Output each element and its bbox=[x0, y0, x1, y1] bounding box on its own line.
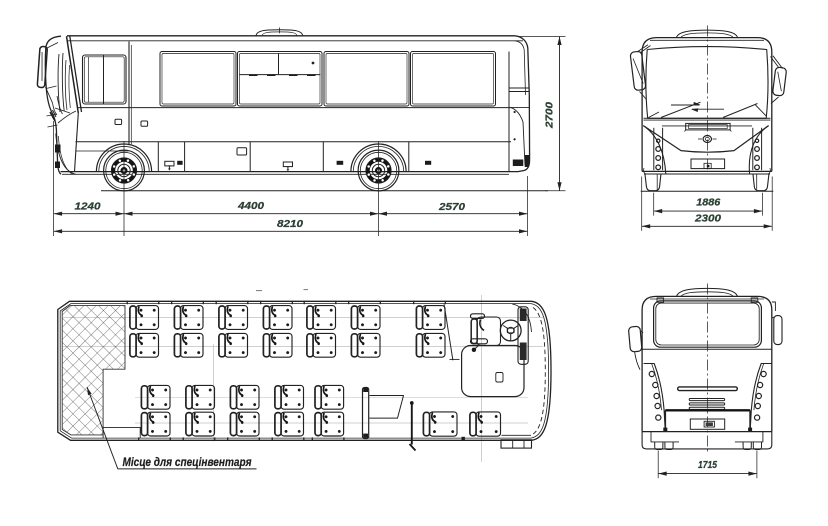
svg-text:1886: 1886 bbox=[696, 197, 720, 208]
svg-text:2700: 2700 bbox=[545, 101, 556, 129]
svg-text:2570: 2570 bbox=[438, 202, 466, 213]
svg-text:2300: 2300 bbox=[694, 214, 722, 225]
svg-text:4400: 4400 bbox=[237, 201, 265, 212]
svg-text:1715: 1715 bbox=[698, 460, 717, 471]
svg-text:8210: 8210 bbox=[277, 219, 304, 230]
svg-text:Місце для спецінвентаря: Місце для спецінвентаря bbox=[123, 455, 252, 469]
svg-text:1240: 1240 bbox=[75, 202, 102, 213]
